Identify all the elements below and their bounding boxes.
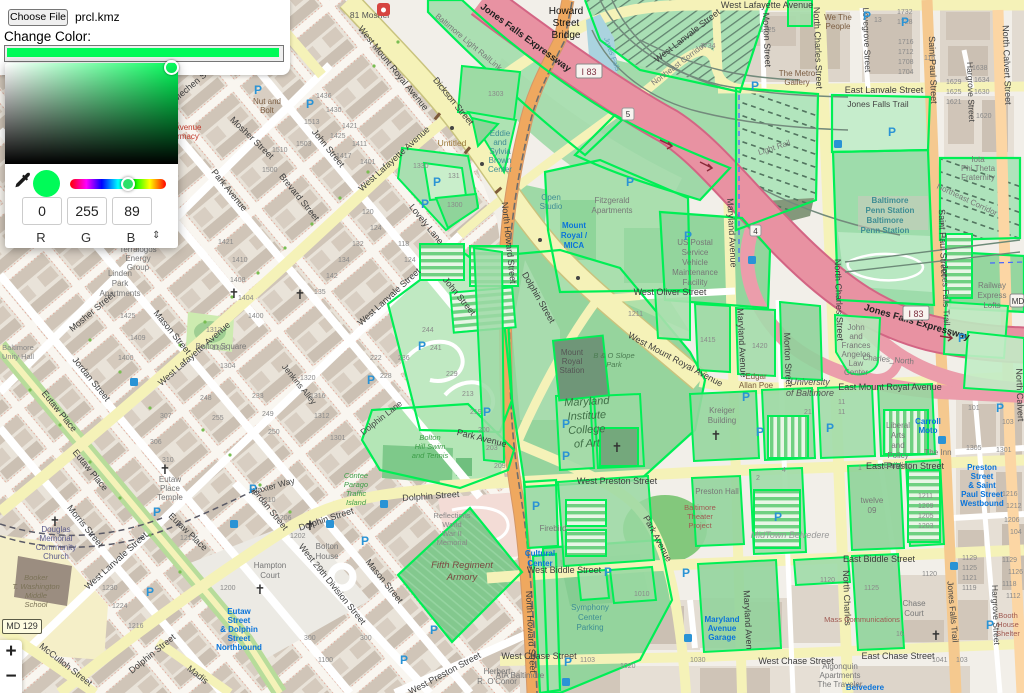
svg-text:1421: 1421 <box>342 123 358 130</box>
svg-text:4: 4 <box>753 227 758 236</box>
svg-text:1500: 1500 <box>262 167 278 174</box>
svg-text:Street: Street <box>553 18 580 29</box>
svg-text:1716: 1716 <box>898 39 914 46</box>
svg-text:Apartments: Apartments <box>820 671 861 680</box>
svg-text:Park: Park <box>606 360 623 369</box>
svg-text:Nut and: Nut and <box>253 97 281 106</box>
svg-text:P: P <box>306 97 314 111</box>
svg-text:of Baltimore: of Baltimore <box>786 388 834 398</box>
svg-text:Maintenance: Maintenance <box>672 268 718 277</box>
svg-text:1425: 1425 <box>120 313 136 320</box>
svg-text:Howard: Howard <box>549 6 583 17</box>
svg-text:Institute: Institute <box>567 409 606 423</box>
svg-text:135: 135 <box>314 289 326 296</box>
svg-text:MidTown Belvedere: MidTown Belvedere <box>751 530 830 540</box>
svg-text:✝: ✝ <box>295 287 306 302</box>
svg-text:✝: ✝ <box>931 628 942 643</box>
svg-text:11: 11 <box>838 409 845 416</box>
svg-text:Building: Building <box>884 461 912 470</box>
svg-text:1202: 1202 <box>290 533 306 540</box>
svg-text:1200: 1200 <box>220 585 236 592</box>
svg-text:Westbound: Westbound <box>960 499 1004 508</box>
svg-text:P: P <box>901 15 909 29</box>
svg-text:P: P <box>418 339 426 353</box>
svg-text:East Mount Royal Avenue: East Mount Royal Avenue <box>838 382 941 392</box>
svg-text:Carroll: Carroll <box>915 417 941 426</box>
svg-text:Eutaw: Eutaw <box>227 607 251 616</box>
svg-text:P: P <box>826 421 834 435</box>
svg-text:P: P <box>986 618 994 632</box>
svg-text:1308: 1308 <box>212 345 228 352</box>
svg-text:236: 236 <box>398 355 410 362</box>
svg-text:Armory: Armory <box>446 572 479 583</box>
svg-text:MICA: MICA <box>564 241 585 250</box>
svg-text:Avenue: Avenue <box>708 624 737 633</box>
svg-text:120: 120 <box>362 209 374 216</box>
svg-text:Island: Island <box>346 498 367 507</box>
svg-text:Sylvia: Sylvia <box>489 147 511 156</box>
svg-text:US Postal: US Postal <box>677 238 713 247</box>
svg-text:1206: 1206 <box>276 515 292 522</box>
svg-text:Preston: Preston <box>967 463 997 472</box>
svg-text:Bolton: Bolton <box>419 433 440 442</box>
svg-text:and: and <box>493 138 506 147</box>
svg-text:228: 228 <box>380 373 392 380</box>
svg-text:Mount: Mount <box>562 221 586 230</box>
svg-text:Baltimore: Baltimore <box>867 216 904 225</box>
svg-text:Theater: Theater <box>687 512 713 521</box>
svg-text:1125: 1125 <box>864 585 879 592</box>
svg-text:East Chase Street: East Chase Street <box>861 651 935 661</box>
svg-text:Jones Falls Trail: Jones Falls Trail <box>847 99 909 109</box>
svg-text:I 83: I 83 <box>908 309 923 319</box>
svg-text:300: 300 <box>304 635 316 642</box>
svg-text:1513: 1513 <box>304 119 320 126</box>
svg-text:1230: 1230 <box>102 585 118 592</box>
svg-text:1312: 1312 <box>314 413 330 420</box>
svg-text:11: 11 <box>838 399 845 406</box>
svg-text:Paul Street: Paul Street <box>961 490 1003 499</box>
svg-text:Church: Church <box>43 552 69 561</box>
svg-text:Service: Service <box>682 248 709 257</box>
svg-text:1118: 1118 <box>1002 581 1017 588</box>
svg-text:1126: 1126 <box>1008 569 1023 576</box>
svg-text:P: P <box>774 510 782 524</box>
svg-text:1421: 1421 <box>218 239 234 246</box>
svg-text:Phi Theta: Phi Theta <box>961 164 996 173</box>
svg-text:1206: 1206 <box>1004 517 1020 524</box>
svg-text:Place: Place <box>160 484 181 493</box>
svg-text:rmacy: rmacy <box>177 132 199 141</box>
svg-text:Royal: Royal <box>562 357 583 366</box>
svg-text:West Oliver Street: West Oliver Street <box>634 287 707 297</box>
svg-text:1420: 1420 <box>752 343 768 350</box>
svg-text:Studio: Studio <box>540 202 563 211</box>
svg-text:Energy: Energy <box>125 254 150 263</box>
svg-text:1409: 1409 <box>130 335 146 342</box>
svg-text:Court: Court <box>904 609 924 618</box>
svg-text:The Metro: The Metro <box>779 69 816 78</box>
svg-text:1211: 1211 <box>628 311 643 318</box>
svg-text:World: World <box>442 520 461 529</box>
svg-text:1704: 1704 <box>898 69 914 76</box>
svg-text:Firebird: Firebird <box>539 524 566 533</box>
svg-text:Fitzgerald: Fitzgerald <box>594 196 629 205</box>
svg-text:213: 213 <box>462 391 474 398</box>
svg-text:Angelos: Angelos <box>842 350 871 359</box>
svg-text:1725: 1725 <box>760 27 776 34</box>
svg-text:P: P <box>742 390 750 404</box>
svg-text:1203: 1203 <box>918 523 934 530</box>
svg-text:1316: 1316 <box>310 393 326 400</box>
svg-text:1304: 1304 <box>220 363 236 370</box>
svg-text:300: 300 <box>360 635 372 642</box>
svg-text:Middle: Middle <box>25 591 47 600</box>
svg-text:203: 203 <box>486 445 498 452</box>
svg-text:P: P <box>361 534 369 548</box>
svg-text:1121: 1121 <box>962 575 977 582</box>
svg-text:1625: 1625 <box>946 89 962 96</box>
svg-text:1205: 1205 <box>918 513 934 520</box>
svg-text:Algonquin: Algonquin <box>822 662 858 671</box>
svg-text:1103: 1103 <box>580 657 595 664</box>
svg-text:132: 132 <box>352 241 364 248</box>
svg-text:142: 142 <box>326 273 338 280</box>
svg-text:Baltimore: Baltimore <box>684 503 716 512</box>
svg-text:1620: 1620 <box>976 113 992 120</box>
svg-text:T. Washington: T. Washington <box>12 582 60 591</box>
svg-text:Preston Hall: Preston Hall <box>695 487 739 496</box>
svg-text:Parking: Parking <box>576 623 603 632</box>
svg-text:1417: 1417 <box>336 153 352 160</box>
svg-text:1: 1 <box>858 465 862 472</box>
svg-text:West Lafayette Avenue: West Lafayette Avenue <box>721 0 813 10</box>
svg-text:House: House <box>315 552 339 561</box>
svg-text:P: P <box>483 405 491 419</box>
svg-text:16: 16 <box>896 631 904 638</box>
svg-text:✝: ✝ <box>255 582 266 597</box>
svg-text:Bolton: Bolton <box>316 542 339 551</box>
svg-text:1129: 1129 <box>1002 557 1017 564</box>
svg-text:P: P <box>421 197 429 211</box>
svg-text:1020: 1020 <box>620 663 636 670</box>
svg-text:P: P <box>433 175 441 189</box>
svg-text:255: 255 <box>212 415 224 422</box>
svg-text:✝: ✝ <box>305 518 316 533</box>
svg-text:124: 124 <box>370 225 382 232</box>
svg-text:Street: Street <box>228 616 251 625</box>
svg-text:1408: 1408 <box>230 277 246 284</box>
svg-text:1216: 1216 <box>1002 491 1018 498</box>
svg-text:241: 241 <box>430 345 442 352</box>
svg-text:1400: 1400 <box>118 355 134 362</box>
svg-text:1330: 1330 <box>413 163 429 170</box>
svg-text:Center: Center <box>578 613 602 622</box>
svg-text:Moto: Moto <box>918 426 937 435</box>
svg-text:Center: Center <box>844 368 868 377</box>
svg-text:248: 248 <box>200 395 212 402</box>
svg-text:Center: Center <box>488 165 512 174</box>
svg-text:Court: Court <box>260 571 280 580</box>
svg-text:Center: Center <box>527 559 552 568</box>
svg-text:1320: 1320 <box>300 375 316 382</box>
svg-text:1400: 1400 <box>248 313 264 320</box>
svg-text:Fraternity: Fraternity <box>961 173 995 182</box>
svg-text:1216: 1216 <box>128 623 144 630</box>
svg-text:✝: ✝ <box>612 440 623 455</box>
svg-text:103: 103 <box>956 657 968 664</box>
svg-text:1125: 1125 <box>962 565 977 572</box>
svg-text:Vehicle: Vehicle <box>682 258 708 267</box>
svg-text:307: 307 <box>160 413 172 420</box>
svg-text:1708: 1708 <box>898 59 914 66</box>
svg-text:Contee: Contee <box>344 471 368 480</box>
svg-text:Maryland: Maryland <box>564 395 611 409</box>
svg-text:1041: 1041 <box>932 657 948 664</box>
svg-text:and: and <box>849 332 862 341</box>
svg-text:West Preston Street: West Preston Street <box>577 476 658 486</box>
svg-text:118: 118 <box>398 241 409 248</box>
svg-text:twelve: twelve <box>861 496 884 505</box>
svg-text:P: P <box>153 505 161 519</box>
svg-text:& Dolphin: & Dolphin <box>220 625 258 634</box>
svg-text:200: 200 <box>478 427 490 434</box>
svg-text:1712: 1712 <box>898 49 914 56</box>
svg-text:1410: 1410 <box>232 257 248 264</box>
svg-text:Project: Project <box>688 521 712 530</box>
svg-text:1425: 1425 <box>330 133 346 140</box>
svg-text:P: P <box>756 425 764 439</box>
svg-text:1415: 1415 <box>700 337 716 344</box>
svg-text:Northbound: Northbound <box>216 643 262 652</box>
svg-text:P: P <box>367 373 375 387</box>
svg-text:B & O Slope: B & O Slope <box>593 351 634 360</box>
svg-text:1120: 1120 <box>922 571 937 578</box>
svg-text:The Inn: The Inn <box>924 448 951 457</box>
svg-text:Avenue: Avenue <box>175 123 203 132</box>
svg-text:Unity Hall: Unity Hall <box>2 352 34 361</box>
svg-text:1510: 1510 <box>272 147 288 154</box>
svg-text:Station: Station <box>560 366 585 375</box>
svg-text:4: 4 <box>782 467 786 474</box>
svg-text:1621: 1621 <box>946 99 962 106</box>
svg-text:P: P <box>626 175 634 189</box>
svg-text:222: 222 <box>370 355 382 362</box>
svg-text:Mass Communications: Mass Communications <box>824 615 900 624</box>
svg-text:Street: Street <box>228 634 251 643</box>
svg-text:1301: 1301 <box>330 435 346 442</box>
svg-text:233: 233 <box>252 393 264 400</box>
svg-text:250: 250 <box>268 429 280 436</box>
svg-text:09: 09 <box>868 506 877 515</box>
svg-text:1436: 1436 <box>316 93 332 100</box>
svg-text:1503: 1503 <box>296 141 312 148</box>
svg-text:131: 131 <box>448 173 460 180</box>
svg-text:Cultural: Cultural <box>525 549 555 558</box>
svg-text:Frances: Frances <box>842 341 871 350</box>
svg-text:Booker: Booker <box>24 573 48 582</box>
svg-text:P: P <box>888 125 896 139</box>
svg-text:1629: 1629 <box>946 79 962 86</box>
svg-text:Building: Building <box>708 416 736 425</box>
svg-text:1212: 1212 <box>1006 503 1022 510</box>
svg-text:244: 244 <box>422 327 434 334</box>
svg-text:229: 229 <box>446 371 458 378</box>
svg-text:The Traveler: The Traveler <box>818 680 863 689</box>
svg-text:P: P <box>254 83 262 97</box>
svg-text:Untitled: Untitled <box>438 138 467 148</box>
svg-text:Memorial: Memorial <box>437 538 468 547</box>
svg-text:Reflections: Reflections <box>433 511 470 520</box>
svg-text:Gallery: Gallery <box>784 78 809 87</box>
svg-text:P: P <box>400 653 408 667</box>
svg-text:P: P <box>562 449 570 463</box>
svg-text:Facility: Facility <box>683 278 708 287</box>
svg-text:Temple: Temple <box>157 493 183 502</box>
svg-text:1300: 1300 <box>447 202 463 209</box>
svg-text:Lofts: Lofts <box>983 301 1000 310</box>
svg-text:P: P <box>430 623 438 637</box>
svg-text:East Biddle Street: East Biddle Street <box>843 554 916 564</box>
svg-text:P: P <box>532 499 540 513</box>
svg-text:Chase: Chase <box>902 599 926 608</box>
svg-text:1210: 1210 <box>260 497 276 504</box>
svg-text:1404: 1404 <box>238 295 254 302</box>
svg-text:1030: 1030 <box>690 657 706 664</box>
svg-text:Bolt: Bolt <box>260 106 275 115</box>
svg-text:Mount: Mount <box>561 348 584 357</box>
svg-text:1734: 1734 <box>700 43 716 50</box>
svg-text:MD: MD <box>1012 297 1024 306</box>
svg-text:1411: 1411 <box>352 141 367 148</box>
svg-text:Garage: Garage <box>708 633 736 642</box>
svg-text:306: 306 <box>150 439 162 446</box>
svg-text:John: John <box>847 323 864 332</box>
svg-text:and Tennis: and Tennis <box>412 451 449 460</box>
svg-text:✝: ✝ <box>711 428 722 443</box>
svg-text:War II: War II <box>442 529 462 538</box>
svg-text:✝: ✝ <box>50 514 61 529</box>
svg-text:103: 103 <box>1002 419 1014 426</box>
svg-text:Fifth Regiment: Fifth Regiment <box>431 560 493 571</box>
svg-text:Parago: Parago <box>344 480 368 489</box>
svg-text:Hampton: Hampton <box>254 561 286 570</box>
svg-text:Hill Swim: Hill Swim <box>415 442 446 451</box>
svg-text:101: 101 <box>968 405 980 412</box>
svg-text:Street: Street <box>971 472 994 481</box>
svg-text:209: 209 <box>494 463 506 470</box>
svg-text:P: P <box>562 417 570 431</box>
svg-text:Park: Park <box>112 279 129 288</box>
svg-text:People: People <box>826 22 851 31</box>
svg-text:1100: 1100 <box>318 657 333 664</box>
svg-text:College: College <box>568 423 606 437</box>
svg-text:104: 104 <box>1010 529 1022 536</box>
svg-text:1430: 1430 <box>326 107 342 114</box>
svg-text:Memorial: Memorial <box>40 534 73 543</box>
svg-text:P: P <box>751 79 759 93</box>
svg-text:Iota: Iota <box>971 155 985 164</box>
svg-text:Eddie: Eddie <box>490 129 511 138</box>
svg-text:P: P <box>958 331 966 345</box>
svg-text:1634: 1634 <box>974 77 990 84</box>
svg-text:1630: 1630 <box>974 89 990 96</box>
svg-text:1119: 1119 <box>962 585 977 592</box>
svg-text:Penn Station: Penn Station <box>866 206 915 215</box>
svg-text:Apartments: Apartments <box>100 289 141 298</box>
svg-text:House: House <box>997 620 1019 629</box>
svg-text:1129: 1129 <box>962 555 977 562</box>
svg-text:116: 116 <box>924 55 935 62</box>
svg-text:Arts: Arts <box>891 431 905 440</box>
svg-text:P: P <box>564 655 572 669</box>
svg-text:& Saint: & Saint <box>968 481 996 490</box>
svg-text:✝: ✝ <box>160 462 171 477</box>
svg-text:1209: 1209 <box>918 503 934 510</box>
svg-text:1112: 1112 <box>1006 593 1021 600</box>
svg-text:1305: 1305 <box>966 445 982 452</box>
svg-text:1120: 1120 <box>820 577 835 584</box>
svg-text:1211: 1211 <box>918 493 933 500</box>
svg-text:1303: 1303 <box>488 91 504 98</box>
svg-text:Symphony: Symphony <box>571 603 609 612</box>
svg-text:Railway: Railway <box>978 281 1006 290</box>
svg-text:134: 134 <box>338 257 350 264</box>
svg-text:Traffic: Traffic <box>346 489 367 498</box>
svg-text:School: School <box>25 600 48 609</box>
svg-text:1312: 1312 <box>206 327 222 334</box>
svg-text:Shelter: Shelter <box>996 629 1020 638</box>
svg-text:Group: Group <box>127 263 150 272</box>
svg-text:East Lanvale Street: East Lanvale Street <box>845 85 924 95</box>
svg-text:1213: 1213 <box>180 535 196 542</box>
svg-text:Allan Poe: Allan Poe <box>739 381 774 390</box>
svg-text:Penn Station: Penn Station <box>861 226 910 235</box>
svg-text:P: P <box>604 565 612 579</box>
svg-text:Apartments: Apartments <box>592 206 633 215</box>
svg-text:Booth: Booth <box>998 611 1018 620</box>
svg-text:P: P <box>996 401 1004 415</box>
svg-text:P: P <box>146 585 154 599</box>
svg-text:1301: 1301 <box>996 447 1012 454</box>
svg-text:1010: 1010 <box>634 591 650 598</box>
svg-text:and: and <box>891 441 904 450</box>
svg-text:of Art: of Art <box>574 437 601 450</box>
svg-text:124: 124 <box>404 257 416 264</box>
svg-text:Open: Open <box>541 193 561 202</box>
svg-text:13: 13 <box>874 17 882 24</box>
svg-text:✝: ✝ <box>229 286 240 301</box>
svg-text:Kreiger: Kreiger <box>709 406 735 415</box>
svg-text:219: 219 <box>470 409 482 416</box>
svg-text:Morton Street: Morton Street <box>761 12 773 67</box>
svg-text:Baltimore: Baltimore <box>2 343 34 352</box>
svg-text:P: P <box>863 9 871 23</box>
svg-text:2: 2 <box>756 475 760 482</box>
svg-text:Policy: Policy <box>887 451 908 460</box>
svg-text:Liberal: Liberal <box>886 421 910 430</box>
svg-text:P: P <box>682 566 690 580</box>
svg-text:P: P <box>684 229 692 243</box>
svg-text:Bridge: Bridge <box>552 30 581 41</box>
svg-text:5: 5 <box>626 110 631 119</box>
svg-text:Maryland: Maryland <box>704 615 739 624</box>
svg-text:21: 21 <box>804 409 812 416</box>
svg-text:249: 249 <box>262 411 274 418</box>
svg-text:We The: We The <box>824 13 852 22</box>
svg-text:Royal /: Royal / <box>561 231 588 240</box>
svg-text:AIA Baltimore: AIA Baltimore <box>496 671 545 680</box>
